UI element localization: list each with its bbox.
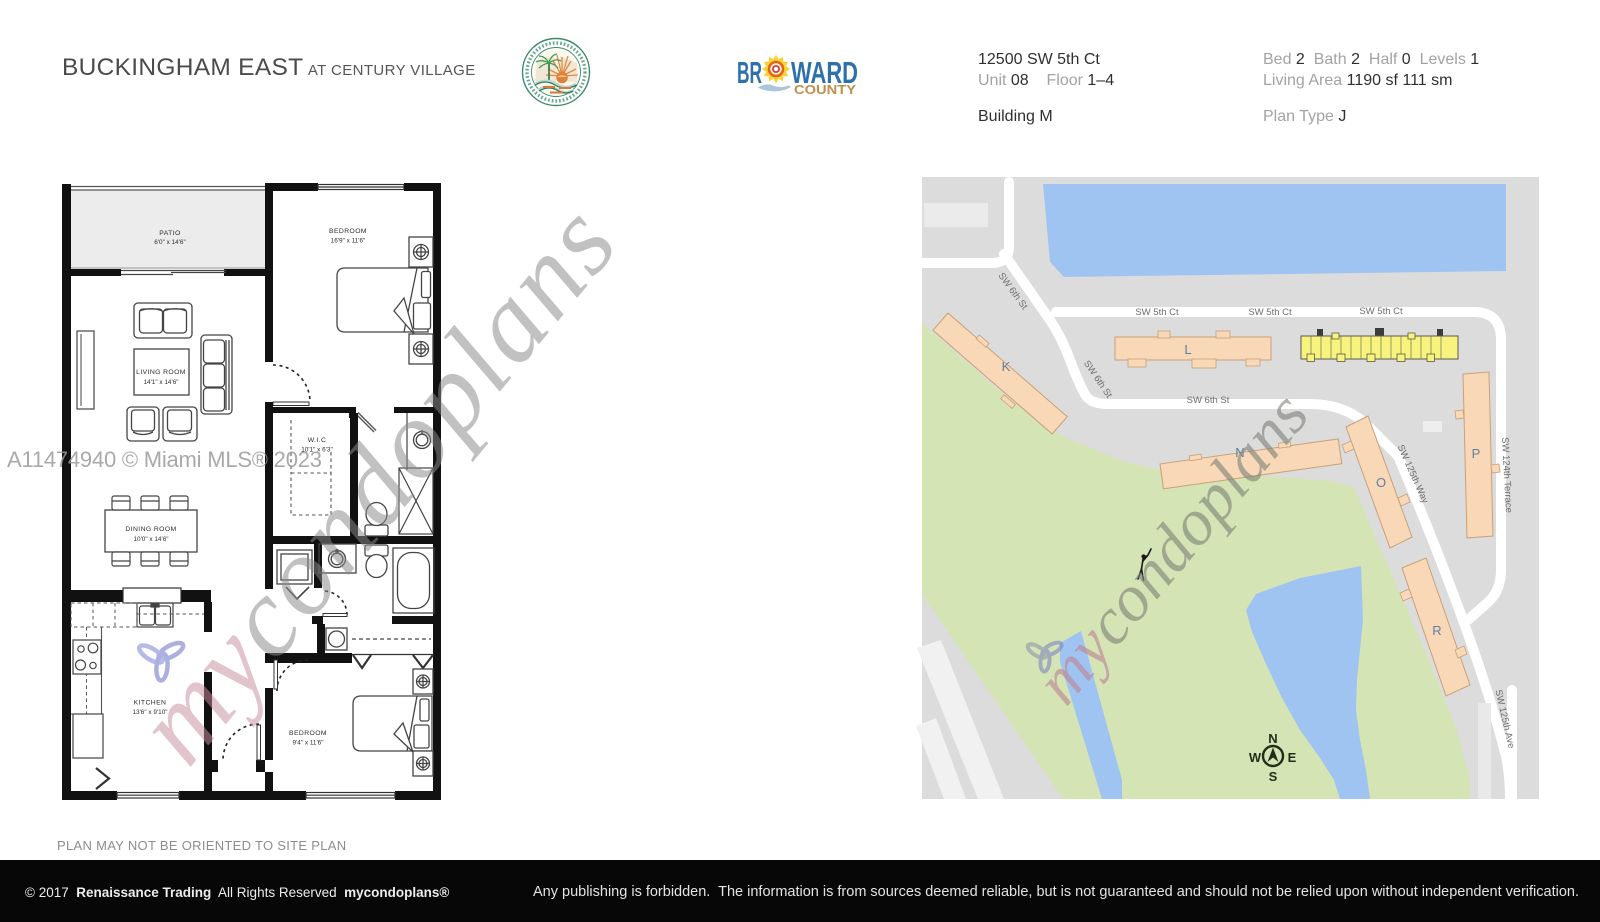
svg-text:SW 6th St: SW 6th St xyxy=(1187,395,1230,406)
svg-text:BR: BR xyxy=(737,55,762,90)
svg-text:BEDROOM: BEDROOM xyxy=(329,228,367,235)
svg-text:10'0" x 14'6": 10'0" x 14'6" xyxy=(133,536,168,543)
svg-text:O: O xyxy=(1376,475,1386,490)
svg-text:E: E xyxy=(1288,750,1297,765)
svg-text:SW 5th Ct: SW 5th Ct xyxy=(1359,306,1403,317)
svg-text:L: L xyxy=(1184,342,1191,357)
svg-text:W: W xyxy=(1249,750,1262,765)
svg-text:BEDROOM: BEDROOM xyxy=(289,730,327,737)
svg-text:LIVING ROOM: LIVING ROOM xyxy=(136,369,186,376)
svg-text:6'0" x 14'6": 6'0" x 14'6" xyxy=(154,239,186,246)
svg-text:P: P xyxy=(1472,446,1481,461)
svg-text:W.I.C: W.I.C xyxy=(308,437,327,444)
svg-text:A11474940 © Miami MLS® 2023: A11474940 © Miami MLS® 2023 xyxy=(7,447,322,472)
svg-text:9'4" x 11'6": 9'4" x 11'6" xyxy=(292,740,323,747)
svg-text:R: R xyxy=(1432,623,1441,638)
svg-text:COUNTY: COUNTY xyxy=(794,83,857,97)
svg-text:16'9" x 11'6": 16'9" x 11'6" xyxy=(331,238,366,245)
svg-text:PATIO: PATIO xyxy=(159,230,180,237)
svg-text:DINING ROOM: DINING ROOM xyxy=(125,526,176,533)
svg-text:S: S xyxy=(1269,769,1278,784)
svg-text:N: N xyxy=(1268,731,1277,746)
svg-text:SW 5th Ct: SW 5th Ct xyxy=(1135,307,1179,318)
svg-text:K: K xyxy=(1002,359,1011,374)
svg-text:14'1" x 14'6": 14'1" x 14'6" xyxy=(143,379,178,386)
svg-text:SW 5th Ct: SW 5th Ct xyxy=(1248,307,1292,318)
